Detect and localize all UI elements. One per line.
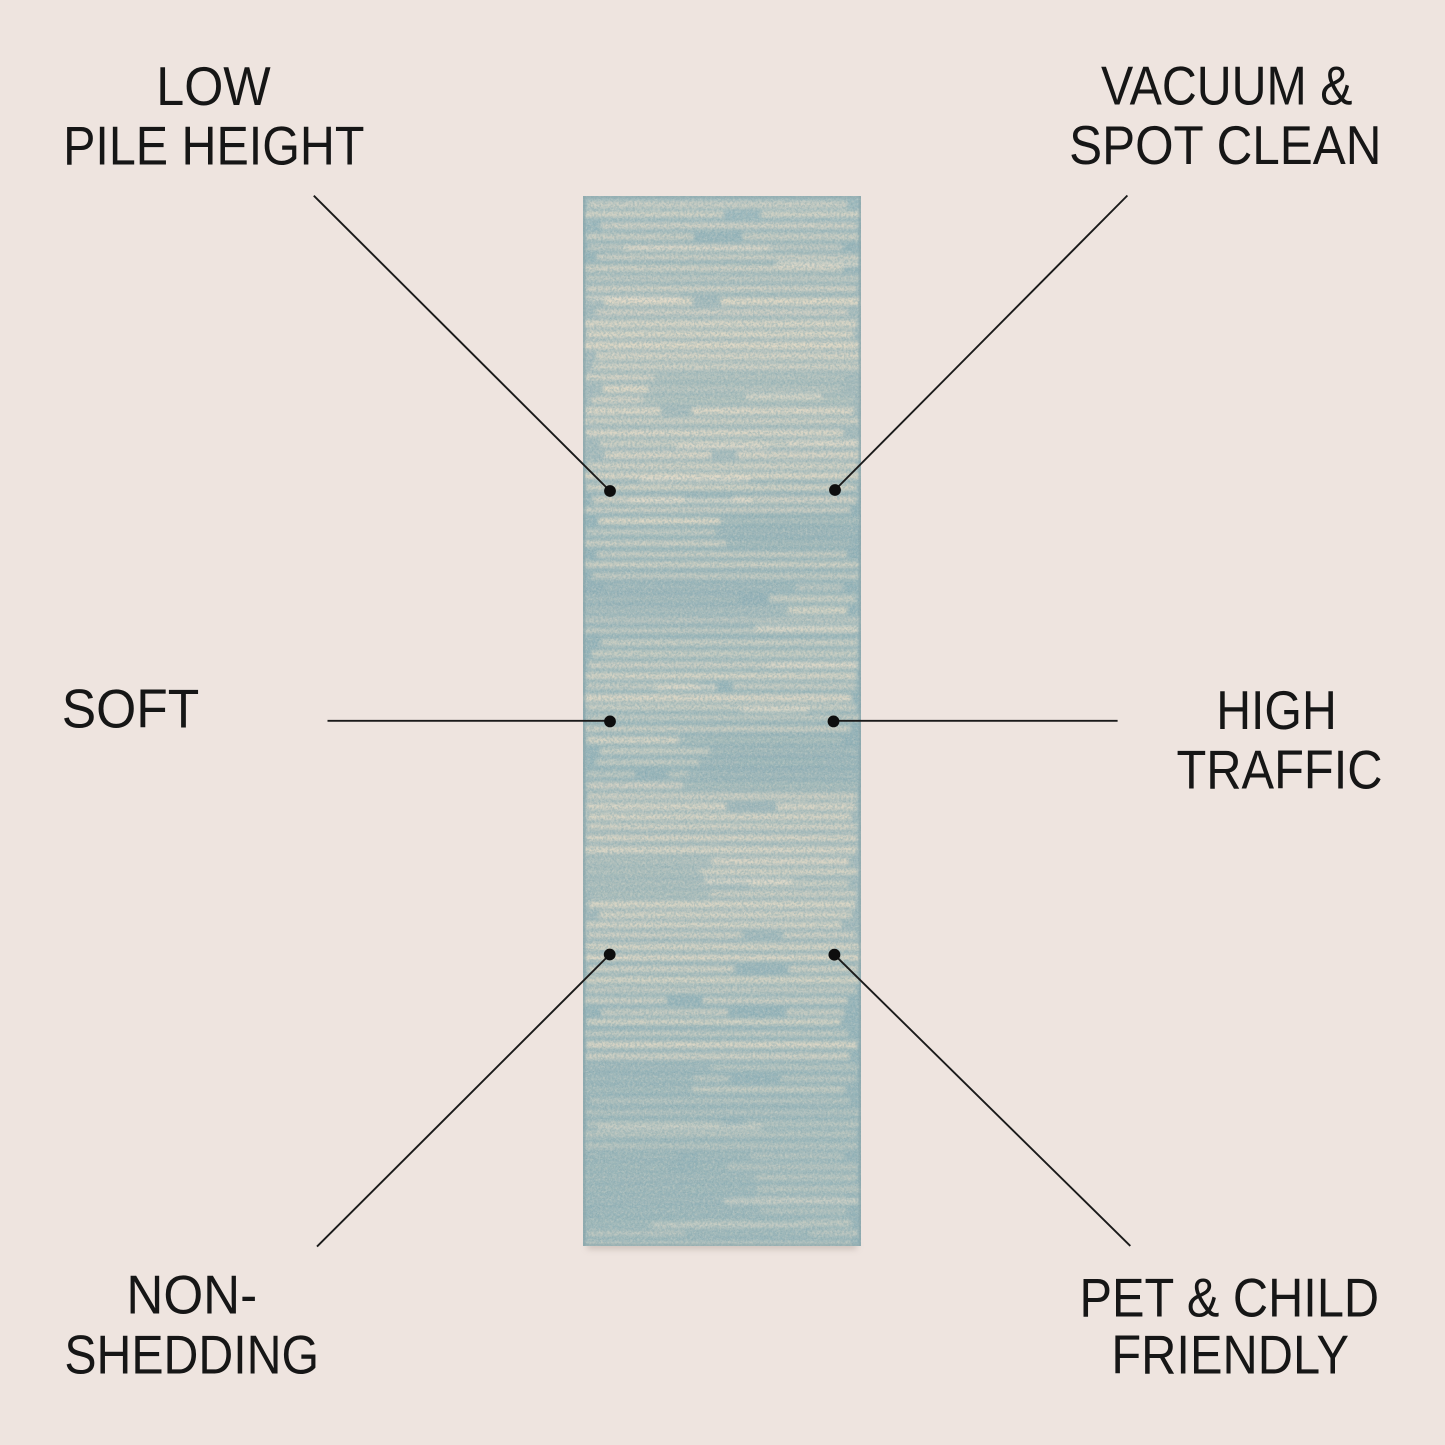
svg-text:FRIENDLY: FRIENDLY	[1111, 1324, 1349, 1386]
svg-text:NON-: NON-	[126, 1264, 257, 1326]
svg-text:SPOT CLEAN: SPOT CLEAN	[1069, 114, 1381, 176]
svg-text:SHEDDING: SHEDDING	[64, 1324, 319, 1386]
svg-text:SOFT: SOFT	[62, 677, 200, 739]
svg-text:HIGH: HIGH	[1216, 679, 1337, 741]
svg-text:PILE HEIGHT: PILE HEIGHT	[63, 114, 364, 176]
svg-text:PET & CHILD: PET & CHILD	[1080, 1266, 1380, 1328]
svg-text:TRAFFIC: TRAFFIC	[1177, 738, 1383, 800]
svg-text:LOW: LOW	[156, 55, 270, 117]
svg-text:VACUUM &: VACUUM &	[1101, 55, 1353, 117]
